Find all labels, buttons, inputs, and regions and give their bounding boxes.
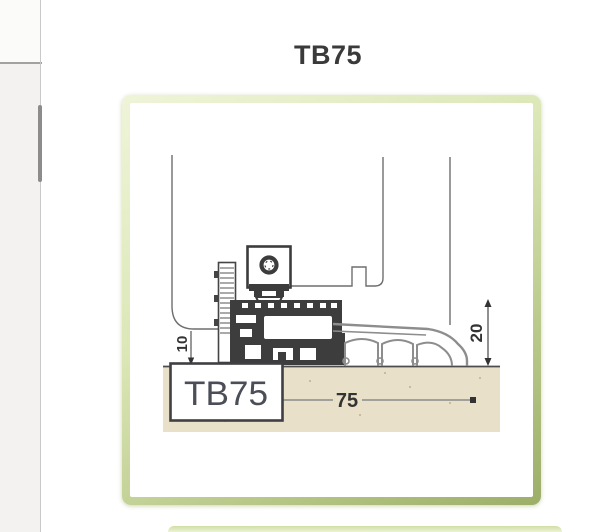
door-frame-line [291, 157, 450, 325]
dimension-offset-10: 10 [174, 331, 194, 365]
svg-text:TB75: TB75 [184, 375, 268, 413]
next-image-frame-edge [168, 526, 562, 532]
left-rail-lower [0, 63, 40, 532]
svg-text:10: 10 [174, 336, 191, 353]
scrollbar-track[interactable] [40, 0, 41, 532]
dimension-height-20: 20 [467, 299, 492, 366]
wall-line-left [172, 155, 221, 333]
rail-horizontal-divider [0, 62, 42, 64]
product-image-frame[interactable]: 20 10 75 TB75 [122, 95, 541, 505]
label-box: TB75 [171, 364, 283, 421]
svg-text:75: 75 [336, 390, 358, 412]
threshold-profile [230, 300, 345, 365]
diagram-canvas: 20 10 75 TB75 [130, 103, 533, 497]
content-area: TB75 [42, 0, 600, 532]
drainage-ramp [333, 324, 467, 366]
svg-text:20: 20 [467, 324, 486, 343]
threshold-cross-section-drawing: 20 10 75 TB75 [130, 103, 533, 497]
page-title: TB75 [42, 40, 600, 71]
screw-head-icon [262, 258, 277, 273]
screw-box [248, 247, 291, 308]
